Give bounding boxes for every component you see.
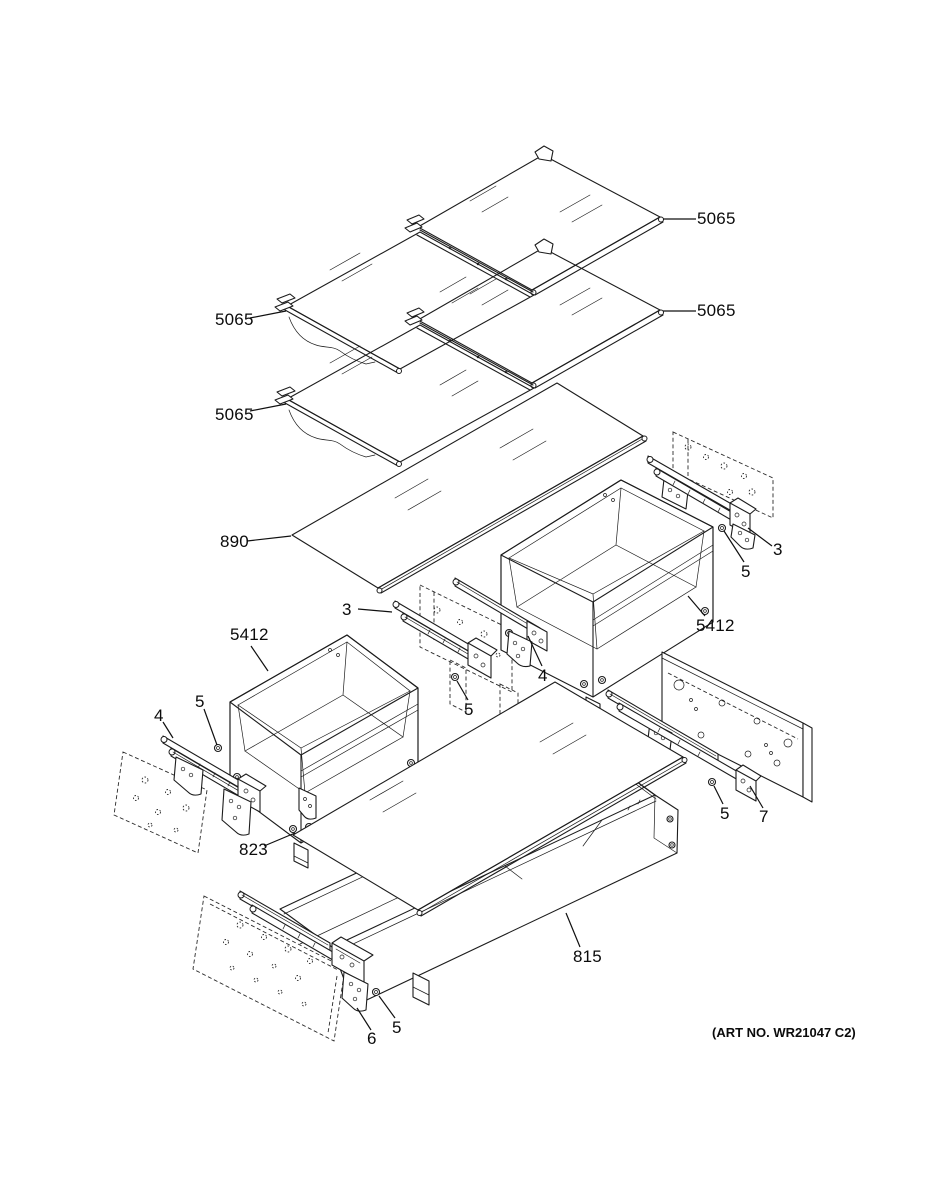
callout-5-left: 5 [195, 693, 205, 710]
shelf-assembly-row2 [275, 239, 664, 467]
callout-5065-upper-left: 5065 [215, 311, 254, 328]
callout-5065-lower-left: 5065 [215, 406, 254, 423]
callout-7: 7 [759, 808, 769, 825]
parts-diagram-page: 5065 5065 5065 5065 890 3 5 5412 3 4 5 5… [0, 0, 927, 1200]
callout-5065-mid-right: 5065 [697, 302, 736, 319]
callout-3-middle: 3 [342, 601, 352, 618]
art-number: (ART NO. WR21047 C2) [712, 1025, 856, 1040]
drawer-foot [413, 973, 429, 1005]
callout-890: 890 [220, 533, 249, 550]
exploded-view-drawing [0, 0, 927, 1200]
shelf-assembly-row1 [275, 146, 664, 374]
callout-5065-top-right: 5065 [697, 210, 736, 227]
callout-5-bottom: 5 [392, 1019, 402, 1036]
shelf-clip [405, 308, 424, 325]
shelf-tab [535, 146, 553, 161]
screw-bottom [373, 989, 380, 996]
screw-left [215, 745, 222, 752]
callout-4-left: 4 [154, 707, 164, 724]
callout-5412-right: 5412 [696, 617, 735, 634]
screw-middle [452, 674, 459, 681]
callout-5-lower-right: 5 [720, 805, 730, 822]
callout-6: 6 [367, 1030, 377, 1047]
callout-3-right: 3 [773, 541, 783, 558]
callout-823: 823 [239, 841, 268, 858]
slide-rail-middle-front [393, 601, 497, 681]
callout-815: 815 [573, 948, 602, 965]
screw-lower-right [709, 779, 716, 786]
shelf-clip [405, 215, 424, 232]
callout-5412-left: 5412 [230, 626, 269, 643]
screw-right [719, 525, 726, 532]
callout-4-middle: 4 [538, 667, 548, 684]
shelf-tab [535, 239, 553, 254]
callout-5-right: 5 [741, 563, 751, 580]
callout-5-middle: 5 [464, 701, 474, 718]
